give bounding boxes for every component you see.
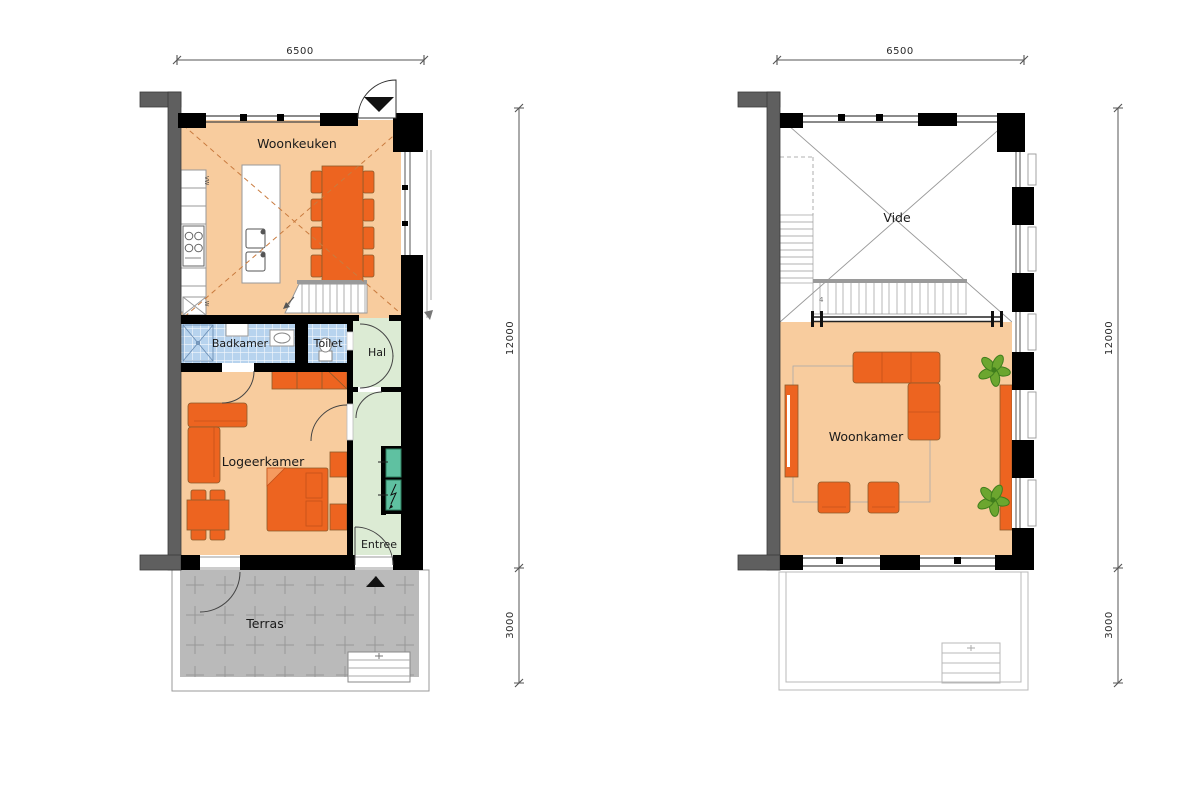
wall-segment xyxy=(381,387,408,392)
wall-segment xyxy=(181,363,222,372)
dining-set xyxy=(311,166,374,288)
stair-landing-edge xyxy=(813,279,967,283)
fridge-icon xyxy=(183,297,206,315)
wall-segment xyxy=(347,363,353,404)
party-wall-ground xyxy=(140,92,181,570)
window xyxy=(401,152,423,255)
entree-label: Entree xyxy=(361,538,397,551)
door-leaf xyxy=(347,332,353,350)
door-leaf xyxy=(347,404,353,440)
dim-height-main-upper: 12000 xyxy=(1104,321,1115,355)
wall-segment xyxy=(389,315,408,321)
wall-segment xyxy=(1012,440,1034,478)
wall-segment xyxy=(381,446,386,515)
wall-segment xyxy=(1012,352,1034,390)
facade-line xyxy=(427,150,431,318)
wall-segment xyxy=(240,555,355,570)
terrace xyxy=(172,570,429,691)
dim-width-upper: 6500 xyxy=(886,46,913,57)
badkamer-label: Badkamer xyxy=(212,337,269,350)
meterkast xyxy=(386,480,401,510)
nightstand xyxy=(330,504,347,530)
stove-icon xyxy=(183,226,204,266)
floorplan-drawing: Woonkeuken Badkamer Toilet Hal Logeerkam… xyxy=(0,0,1200,800)
nightstand xyxy=(330,452,347,477)
wall-segment xyxy=(181,315,353,324)
armchair xyxy=(818,482,850,513)
wall-segment xyxy=(780,113,803,128)
bed xyxy=(267,468,328,531)
wall-segment xyxy=(347,324,353,332)
hal-label: Hal xyxy=(368,346,386,359)
wall-segment xyxy=(181,555,200,570)
vanity-icon xyxy=(270,330,294,346)
downspout-arrow-icon xyxy=(424,310,433,320)
wall-segment xyxy=(918,113,957,126)
woonkamer-label: Woonkamer xyxy=(829,429,904,444)
dim-height-terrace-upper: 3000 xyxy=(1104,611,1115,638)
dim-height-terrace-ground: 3000 xyxy=(505,611,516,638)
dim-height-main-ground: 12000 xyxy=(505,321,516,355)
wall-segment xyxy=(997,113,1025,152)
wall-segment xyxy=(254,363,353,372)
toilet-label: Toilet xyxy=(313,337,343,350)
wall-segment xyxy=(347,350,353,363)
closet xyxy=(386,449,401,477)
terrace-ghost-outline xyxy=(779,572,1028,690)
wall-segment xyxy=(353,387,358,392)
sideboard xyxy=(1000,385,1012,530)
stair-landing-edge xyxy=(297,280,367,284)
stair-count-label: 4 xyxy=(819,296,824,304)
wall-segment xyxy=(1012,187,1034,225)
vide-label: Vide xyxy=(883,210,911,225)
wall-segment xyxy=(386,510,401,514)
terrace-steps xyxy=(348,652,410,682)
wall-segment xyxy=(995,555,1025,570)
wall-segment xyxy=(393,113,423,152)
wall-segment xyxy=(780,555,803,570)
wall-segment xyxy=(347,440,353,555)
terras-label: Terras xyxy=(245,616,283,631)
dining-table xyxy=(322,166,363,288)
dim-width-ground: 6500 xyxy=(286,46,313,57)
wall-segment xyxy=(393,555,423,570)
dishwasher-label: VW xyxy=(203,176,209,186)
party-wall-upper xyxy=(738,92,780,570)
wall-segment xyxy=(1012,273,1034,312)
wall-segment xyxy=(880,555,920,570)
wall-segment xyxy=(353,315,359,321)
tv-screen xyxy=(787,395,790,467)
wall-segment xyxy=(320,113,358,126)
tv-unit xyxy=(785,385,798,477)
floorplan-canvas: Woonkeuken Badkamer Toilet Hal Logeerkam… xyxy=(0,0,1200,800)
woonkeuken-label: Woonkeuken xyxy=(257,136,337,151)
logeerkamer-label: Logeerkamer xyxy=(222,454,305,469)
armchair xyxy=(868,482,899,513)
wall-segment xyxy=(295,324,308,363)
wall-segment xyxy=(401,255,423,555)
washer-label: W xyxy=(203,301,209,307)
wall-segment xyxy=(178,113,206,128)
